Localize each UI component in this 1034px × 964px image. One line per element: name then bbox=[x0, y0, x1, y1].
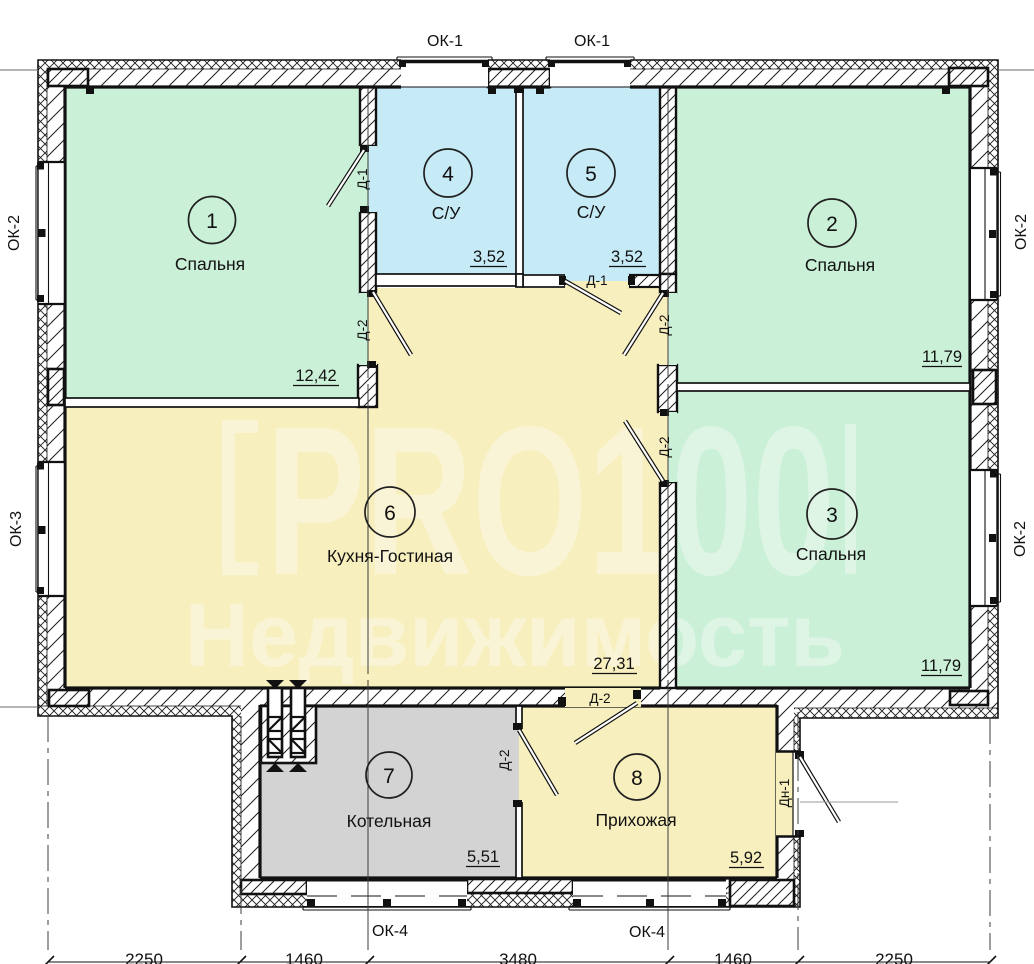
svg-text:Дн-1: Дн-1 bbox=[777, 779, 792, 808]
svg-text:ОК-2: ОК-2 bbox=[1012, 521, 1029, 557]
svg-text:Котельная: Котельная bbox=[347, 811, 432, 831]
svg-text:5,51: 5,51 bbox=[467, 848, 499, 866]
svg-text:Д-2: Д-2 bbox=[497, 749, 512, 770]
svg-text:1: 1 bbox=[206, 210, 218, 233]
svg-text:3,52: 3,52 bbox=[473, 248, 505, 266]
svg-text:2: 2 bbox=[826, 213, 838, 236]
svg-text:5,92: 5,92 bbox=[730, 849, 762, 867]
svg-text:11,79: 11,79 bbox=[921, 657, 961, 675]
svg-text:ОК-4: ОК-4 bbox=[629, 924, 665, 941]
svg-text:Д-1: Д-1 bbox=[586, 273, 607, 288]
svg-text:3: 3 bbox=[826, 504, 838, 527]
svg-text:8: 8 bbox=[631, 767, 643, 790]
svg-text:С/У: С/У bbox=[577, 202, 607, 222]
svg-text:ОК-2: ОК-2 bbox=[1013, 214, 1030, 250]
svg-text:Д-2: Д-2 bbox=[355, 319, 370, 340]
svg-text:Д-2: Д-2 bbox=[657, 436, 672, 457]
svg-text:12,42: 12,42 bbox=[295, 367, 336, 385]
svg-text:ОК-4: ОК-4 bbox=[372, 923, 408, 940]
svg-text:5: 5 bbox=[585, 163, 597, 186]
svg-text:27,31: 27,31 bbox=[593, 655, 634, 673]
svg-text:11,79: 11,79 bbox=[922, 348, 962, 366]
svg-text:ОК-3: ОК-3 bbox=[8, 511, 25, 547]
svg-text:7: 7 bbox=[383, 765, 395, 788]
svg-text:Спальня: Спальня bbox=[805, 255, 875, 275]
svg-text:Д-2: Д-2 bbox=[589, 691, 610, 706]
svg-text:3,52: 3,52 bbox=[611, 248, 643, 266]
svg-text:ОК-1: ОК-1 bbox=[427, 33, 463, 50]
svg-text:Спальня: Спальня bbox=[796, 544, 866, 564]
svg-text:6: 6 bbox=[384, 502, 396, 525]
svg-text:Спальня: Спальня bbox=[175, 254, 245, 274]
svg-text:PRO100: PRO100 bbox=[266, 382, 835, 619]
svg-text:С/У: С/У bbox=[432, 203, 462, 223]
svg-text:ОК-1: ОК-1 bbox=[574, 33, 610, 50]
svg-text:Кухня-Гостиная: Кухня-Гостиная bbox=[327, 546, 453, 566]
svg-text:ОК-2: ОК-2 bbox=[6, 215, 23, 251]
svg-text:Д-1: Д-1 bbox=[355, 168, 370, 189]
svg-text:Прихожая: Прихожая bbox=[595, 810, 676, 830]
svg-text:Недвижимость: Недвижимость bbox=[185, 586, 845, 686]
svg-text:Д-2: Д-2 bbox=[657, 314, 672, 335]
svg-text:4: 4 bbox=[442, 163, 454, 186]
